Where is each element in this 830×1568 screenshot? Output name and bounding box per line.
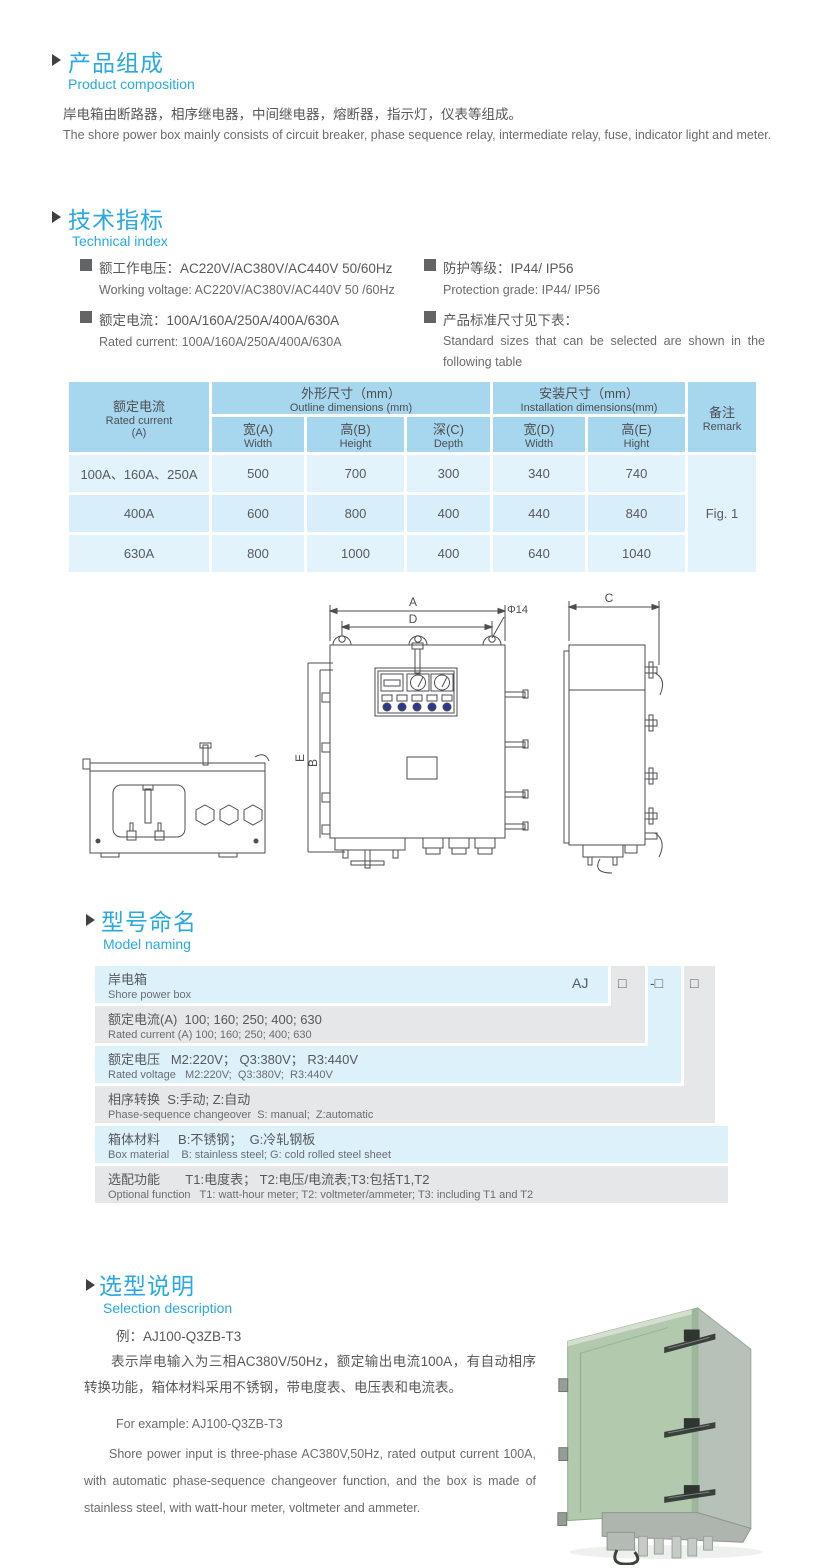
product-desc-en: The shore power box mainly consists of c… <box>63 128 771 142</box>
square-bullet-icon <box>424 259 436 271</box>
indicator-lights <box>382 695 452 711</box>
section-subtitle-selection: Selection description <box>103 1300 232 1316</box>
section-arrow-icon <box>86 1279 95 1291</box>
spec-standard-sizes-zh: 产品标准尺寸见下表： <box>443 309 578 329</box>
hinge-icons <box>558 1379 568 1526</box>
model-row-phase-sequence: 相序转换 S:手动; Z:自动 Phase-sequence changeove… <box>95 1086 715 1123</box>
section-subtitle-product: Product composition <box>68 76 195 92</box>
front-view-drawing <box>308 605 528 868</box>
diameter-label: Φ14 <box>507 604 528 616</box>
dimension-label-e: E <box>293 754 307 762</box>
model-row-shore-power-box: 岸电箱 Shore power box <box>95 966 608 1003</box>
spec-protection-en: Protection grade: IP44/ IP56 <box>443 283 600 297</box>
model-code-prefix: AJ <box>572 975 588 991</box>
model-code-box1: □ <box>618 975 626 991</box>
spec-rated-current-zh: 额定电流：100A/160A/250A/400A/630A <box>99 309 339 329</box>
product-photo-green-box <box>548 1290 804 1565</box>
model-naming-table: 岸电箱 Shore power box 额定电流(A) 100; 160; 25… <box>95 966 728 1207</box>
header-outline-dimensions: 外形尺寸（mm） Outline dimensions (mm) <box>212 382 490 414</box>
section-subtitle-technical: Technical index <box>72 233 168 249</box>
dimension-label-a: A <box>409 595 417 609</box>
dimension-label-b: B <box>306 759 320 767</box>
spec-standard-sizes-en: Standard sizes that can be selected are … <box>443 331 765 373</box>
model-code-box3: □ <box>690 975 698 991</box>
technical-drawing: A D Φ14 E B C <box>55 575 775 875</box>
side-view-drawing <box>564 601 663 873</box>
model-code-box2: -□ <box>650 975 663 991</box>
header-rated-current: 额定电流 Rated current (A) <box>69 382 209 452</box>
header-height-b: 高(B)Height <box>307 417 404 452</box>
dimension-table: 额定电流 Rated current (A) 外形尺寸（mm） Outline … <box>66 379 759 575</box>
header-depth-c: 深(C)Depth <box>407 417 490 452</box>
header-installation-dimensions: 安装尺寸（mm） Installation dimensions(mm) <box>493 382 685 414</box>
section-arrow-icon <box>86 914 95 926</box>
section-arrow-icon <box>52 54 61 66</box>
model-row-optional-function: 选配功能 T1:电度表； T2:电压/电流表;T3:包括T1,T2 Option… <box>95 1166 728 1203</box>
model-row-box-material: 箱体材料 B:不锈钢； G:冷轧钢板 Box material B: stain… <box>95 1126 728 1163</box>
table-row: 400A 600 800 400 440 840 <box>69 495 756 532</box>
section-title-product: 产品组成 <box>68 44 164 78</box>
header-remark: 备注 Remark <box>688 382 756 452</box>
selection-example-en: For example: AJ100-Q3ZB-T3 <box>116 1417 283 1431</box>
model-row-rated-voltage: 额定电压 M2:220V； Q3:380V； R3:440V Rated vol… <box>95 1046 680 1083</box>
section-title-technical: 技术指标 <box>68 201 164 235</box>
header-width-a: 宽(A)Width <box>212 417 304 452</box>
catalog-page: 产品组成 Product composition 岸电箱由断路器，相序继电器，中… <box>0 0 830 1568</box>
table-row: 100A、160A、250A 500 700 300 340 740 Fig. … <box>69 455 756 492</box>
selection-example-zh: 例：AJ100-Q3ZB-T3 <box>116 1325 241 1345</box>
section-title-selection: 选型说明 <box>99 1267 195 1301</box>
spec-working-voltage-en: Working voltage: AC220V/AC380V/AC440V 50… <box>99 283 395 297</box>
spec-working-voltage-zh: 额工作电压：AC220V/AC380V/AC440V 50/60Hz <box>99 257 392 277</box>
dimension-label-c: C <box>605 591 614 605</box>
model-row-rated-current: 额定电流(A) 100; 160; 250; 400; 630 Rated cu… <box>95 1006 645 1043</box>
meter-panel <box>375 668 457 716</box>
square-bullet-icon <box>80 311 92 323</box>
selection-paragraph-zh: 表示岸电输入为三相AC380V/50Hz，额定输出电流100A，有自动相序转换功… <box>84 1349 536 1401</box>
latch-icons <box>645 662 663 857</box>
section-subtitle-model: Model naming <box>103 936 191 952</box>
square-bullet-icon <box>424 311 436 323</box>
spec-protection-zh: 防护等级：IP44/ IP56 <box>443 257 574 277</box>
table-row: 630A 800 1000 400 640 1040 <box>69 535 756 572</box>
section-title-model: 型号命名 <box>101 903 197 937</box>
header-width-d: 宽(D)Width <box>493 417 585 452</box>
header-hight-e: 高(E)Hight <box>588 417 685 452</box>
product-desc-zh: 岸电箱由断路器，相序继电器，中间继电器，熔断器，指示灯，仪表等组成。 <box>63 103 522 123</box>
bottom-view-drawing <box>83 743 269 857</box>
remark-cell: Fig. 1 <box>688 455 756 572</box>
selection-paragraph-en: Shore power input is three-phase AC380V,… <box>84 1441 536 1522</box>
spec-rated-current-en: Rated current: 100A/160A/250A/400A/630A <box>99 335 342 349</box>
dimension-label-d: D <box>409 612 418 626</box>
latch-icons <box>505 690 528 830</box>
section-arrow-icon <box>52 211 61 223</box>
square-bullet-icon <box>80 259 92 271</box>
